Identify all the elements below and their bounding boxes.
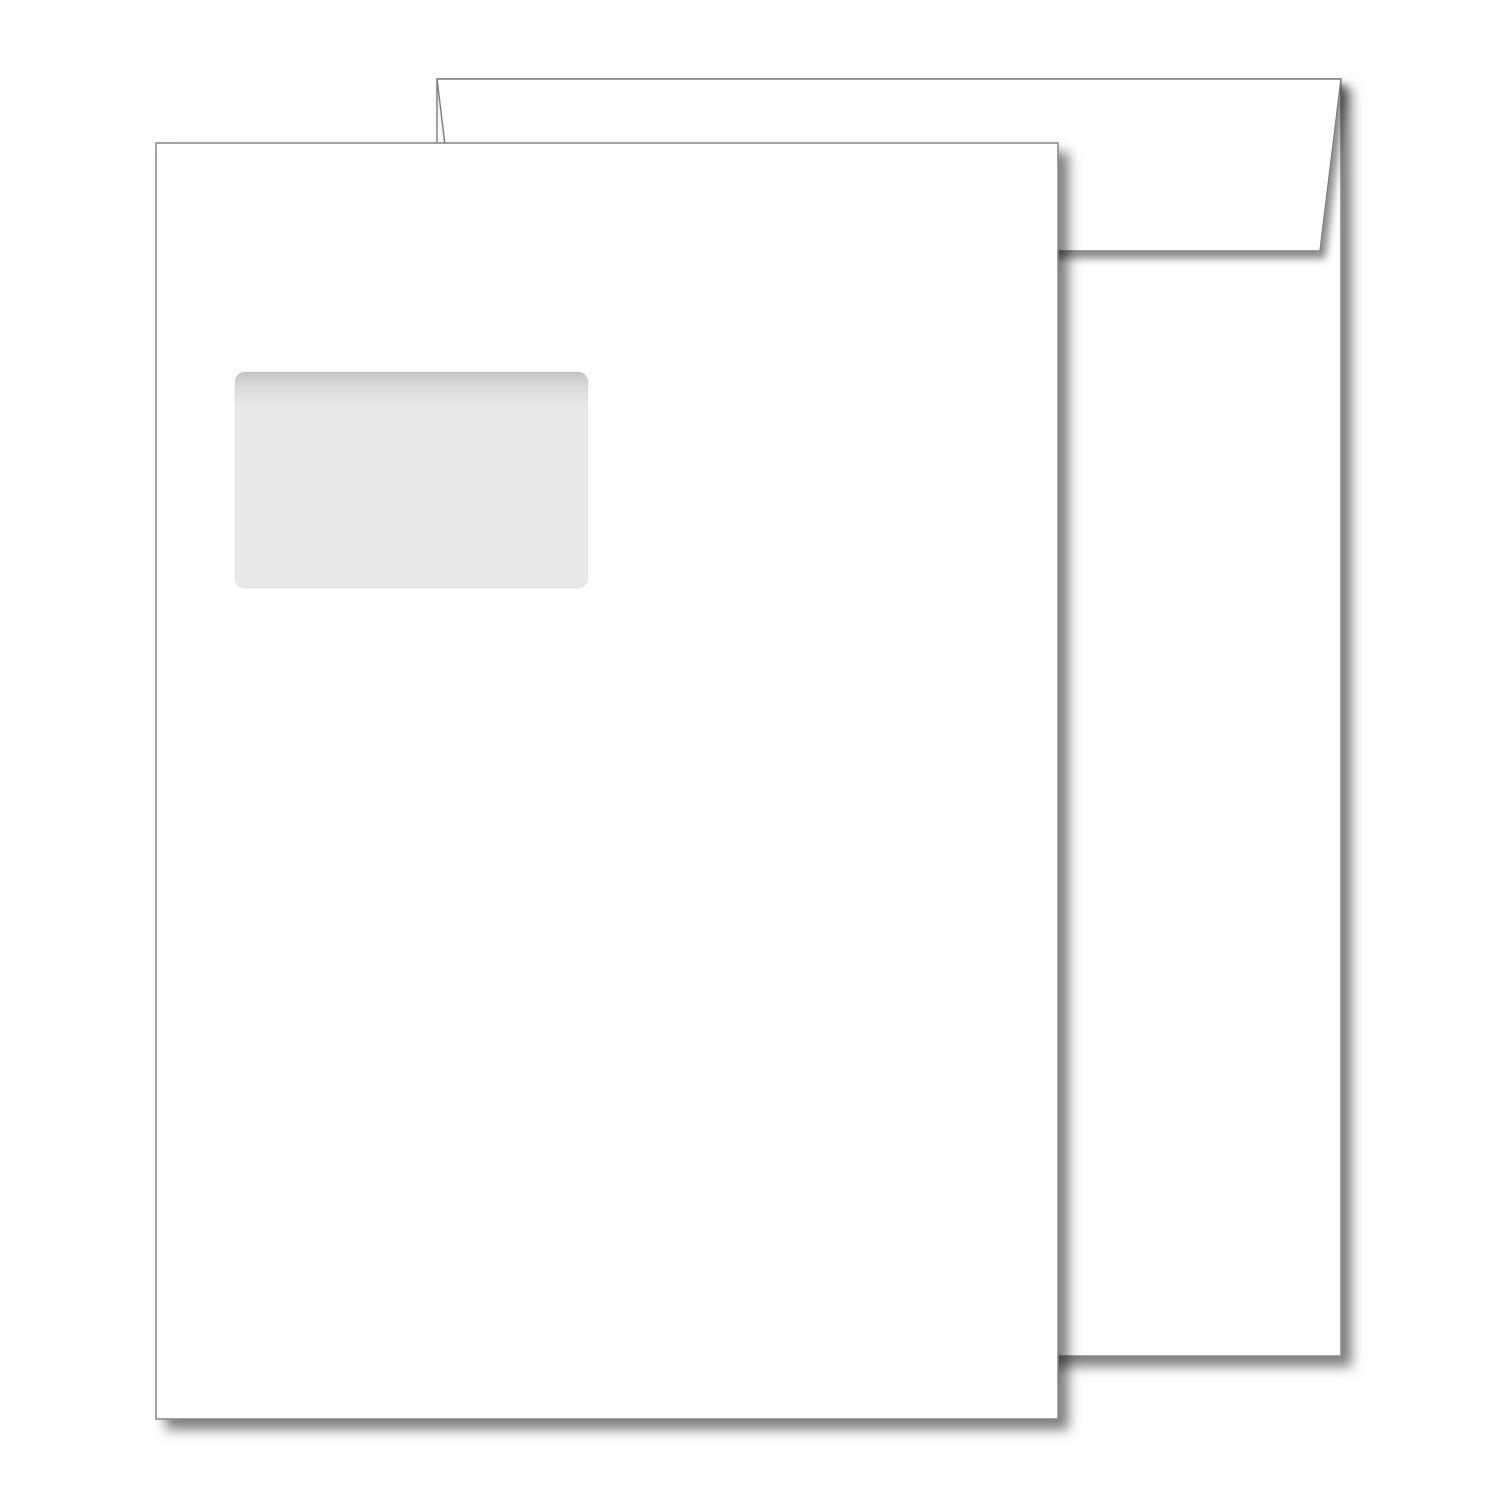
front-envelope — [156, 143, 1058, 1419]
address-window-inset-shadow — [235, 372, 588, 588]
envelope-product-image — [0, 0, 1500, 1500]
envelope-illustration — [0, 0, 1500, 1500]
